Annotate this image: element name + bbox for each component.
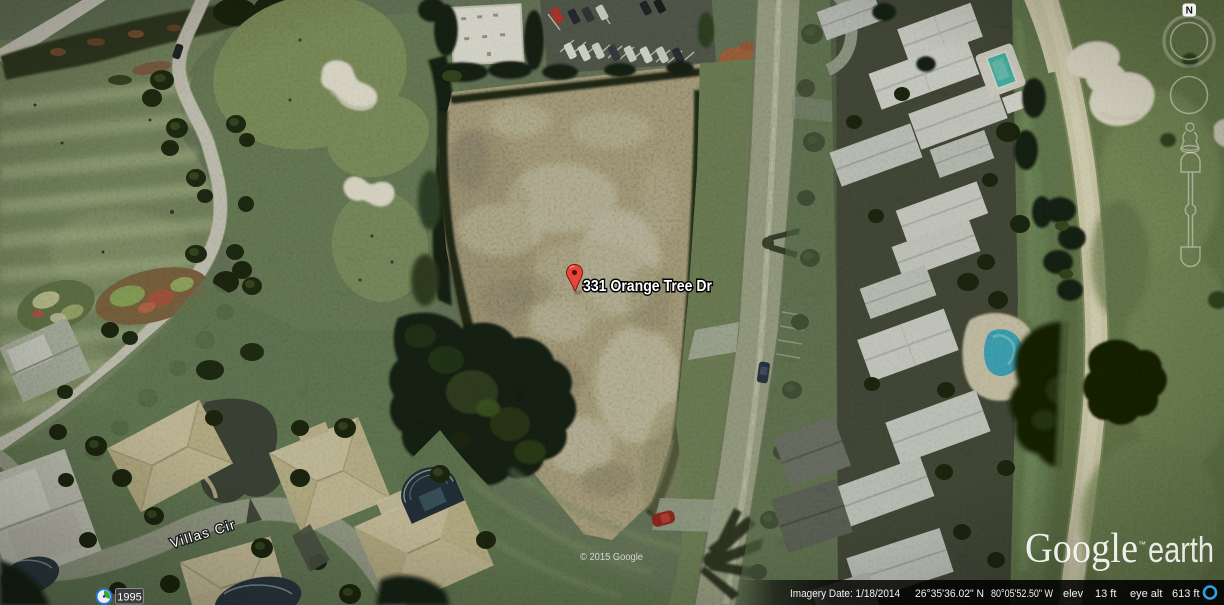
svg-text:13 ft: 13 ft — [1095, 588, 1116, 600]
svg-text:™: ™ — [1138, 540, 1146, 549]
svg-text:earth: earth — [1148, 529, 1214, 570]
svg-text:26°35'36.02" N: 26°35'36.02" N — [915, 588, 984, 600]
svg-text:© 2015 Google: © 2015 Google — [580, 552, 643, 563]
svg-text:Google: Google — [1025, 526, 1138, 572]
svg-text:1995: 1995 — [117, 592, 141, 604]
svg-text:613 ft: 613 ft — [1172, 588, 1200, 600]
svg-text:80°05'52.50" W: 80°05'52.50" W — [991, 588, 1054, 600]
svg-text:331 Orange Tree Dr: 331 Orange Tree Dr — [583, 278, 712, 295]
svg-text:eye alt: eye alt — [1130, 588, 1162, 600]
svg-text:Imagery Date: 1/18/2014: Imagery Date: 1/18/2014 — [790, 588, 900, 600]
svg-text:elev: elev — [1063, 588, 1084, 600]
